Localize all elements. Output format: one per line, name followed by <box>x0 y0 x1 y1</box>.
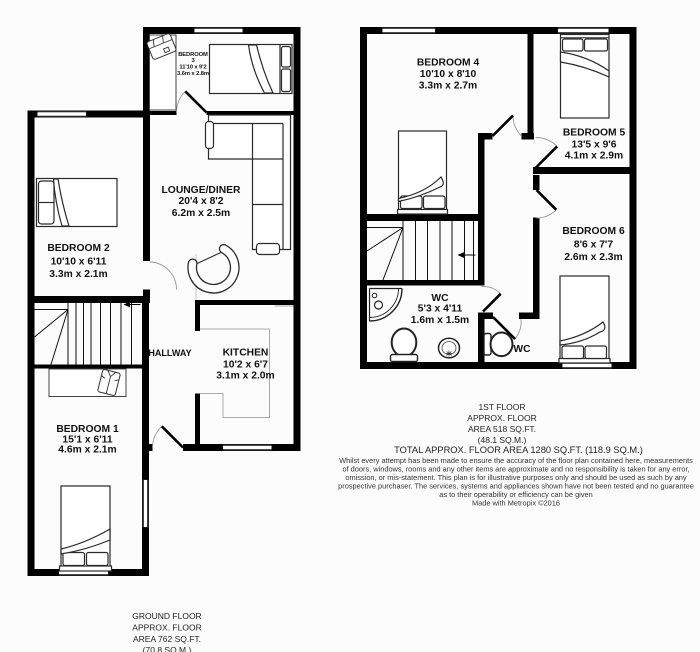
svg-text:WC: WC <box>513 344 531 355</box>
svg-text:GROUND FLOOR: GROUND FLOOR <box>132 611 201 621</box>
svg-text:BEDROOM 2: BEDROOM 2 <box>47 243 110 254</box>
svg-text:20'4 x 8'2: 20'4 x 8'2 <box>179 196 224 207</box>
svg-text:13'5 x 9'6: 13'5 x 9'6 <box>572 140 617 151</box>
svg-text:BEDROOM 5: BEDROOM 5 <box>563 127 626 138</box>
svg-text:4.1m x 2.9m: 4.1m x 2.9m <box>565 150 623 161</box>
svg-text:HALLWAY: HALLWAY <box>148 348 191 358</box>
svg-text:10'2 x 6'7: 10'2 x 6'7 <box>223 359 268 370</box>
svg-text:5'3 x 4'11: 5'3 x 4'11 <box>418 304 463 315</box>
svg-text:10'10 x 8'10: 10'10 x 8'10 <box>420 69 477 80</box>
svg-text:2.6m x 2.3m: 2.6m x 2.3m <box>564 252 622 263</box>
svg-text:BEDROOM 4: BEDROOM 4 <box>417 57 480 68</box>
svg-text:Made with Metropix ©2016: Made with Metropix ©2016 <box>472 498 560 507</box>
svg-text:(70.8 SQ.M.): (70.8 SQ.M.) <box>143 645 192 652</box>
svg-text:APPROX. FLOOR: APPROX. FLOOR <box>132 623 201 633</box>
svg-text:4.6m x 2.1m: 4.6m x 2.1m <box>58 445 116 456</box>
svg-text:10'10 x 6'11: 10'10 x 6'11 <box>51 257 107 268</box>
svg-text:(48.1 SQ.M.): (48.1 SQ.M.) <box>478 435 527 445</box>
svg-text:BEDROOM 6: BEDROOM 6 <box>562 226 625 237</box>
svg-text:3.1m x 2.0m: 3.1m x 2.0m <box>216 370 274 381</box>
svg-text:1.6m x 1.5m: 1.6m x 1.5m <box>411 315 469 326</box>
svg-text:LOUNGE/DINER: LOUNGE/DINER <box>162 185 242 196</box>
svg-text:3.3m x 2.1m: 3.3m x 2.1m <box>49 269 107 280</box>
svg-text:3.3m x 2.7m: 3.3m x 2.7m <box>419 81 477 92</box>
svg-text:6.2m x 2.5m: 6.2m x 2.5m <box>172 208 230 219</box>
svg-text:BEDROOM 1: BEDROOM 1 <box>56 424 119 435</box>
svg-text:TOTAL APPROX. FLOOR AREA 1280: TOTAL APPROX. FLOOR AREA 1280 SQ.FT. (11… <box>394 445 643 455</box>
svg-text:AREA 518 SQ.FT.: AREA 518 SQ.FT. <box>468 424 536 434</box>
svg-text:APPROX. FLOOR: APPROX. FLOOR <box>467 413 536 423</box>
svg-text:WC: WC <box>431 293 449 304</box>
svg-text:8'6 x 7'7: 8'6 x 7'7 <box>574 239 614 250</box>
svg-text:3.6m x 2.8m: 3.6m x 2.8m <box>177 71 209 77</box>
svg-text:11'10 x 9'2: 11'10 x 9'2 <box>179 65 206 71</box>
svg-text:AREA 762 SQ.FT.: AREA 762 SQ.FT. <box>133 634 201 644</box>
svg-text:1ST FLOOR: 1ST FLOOR <box>478 402 525 412</box>
svg-text:KITCHEN: KITCHEN <box>223 347 269 358</box>
